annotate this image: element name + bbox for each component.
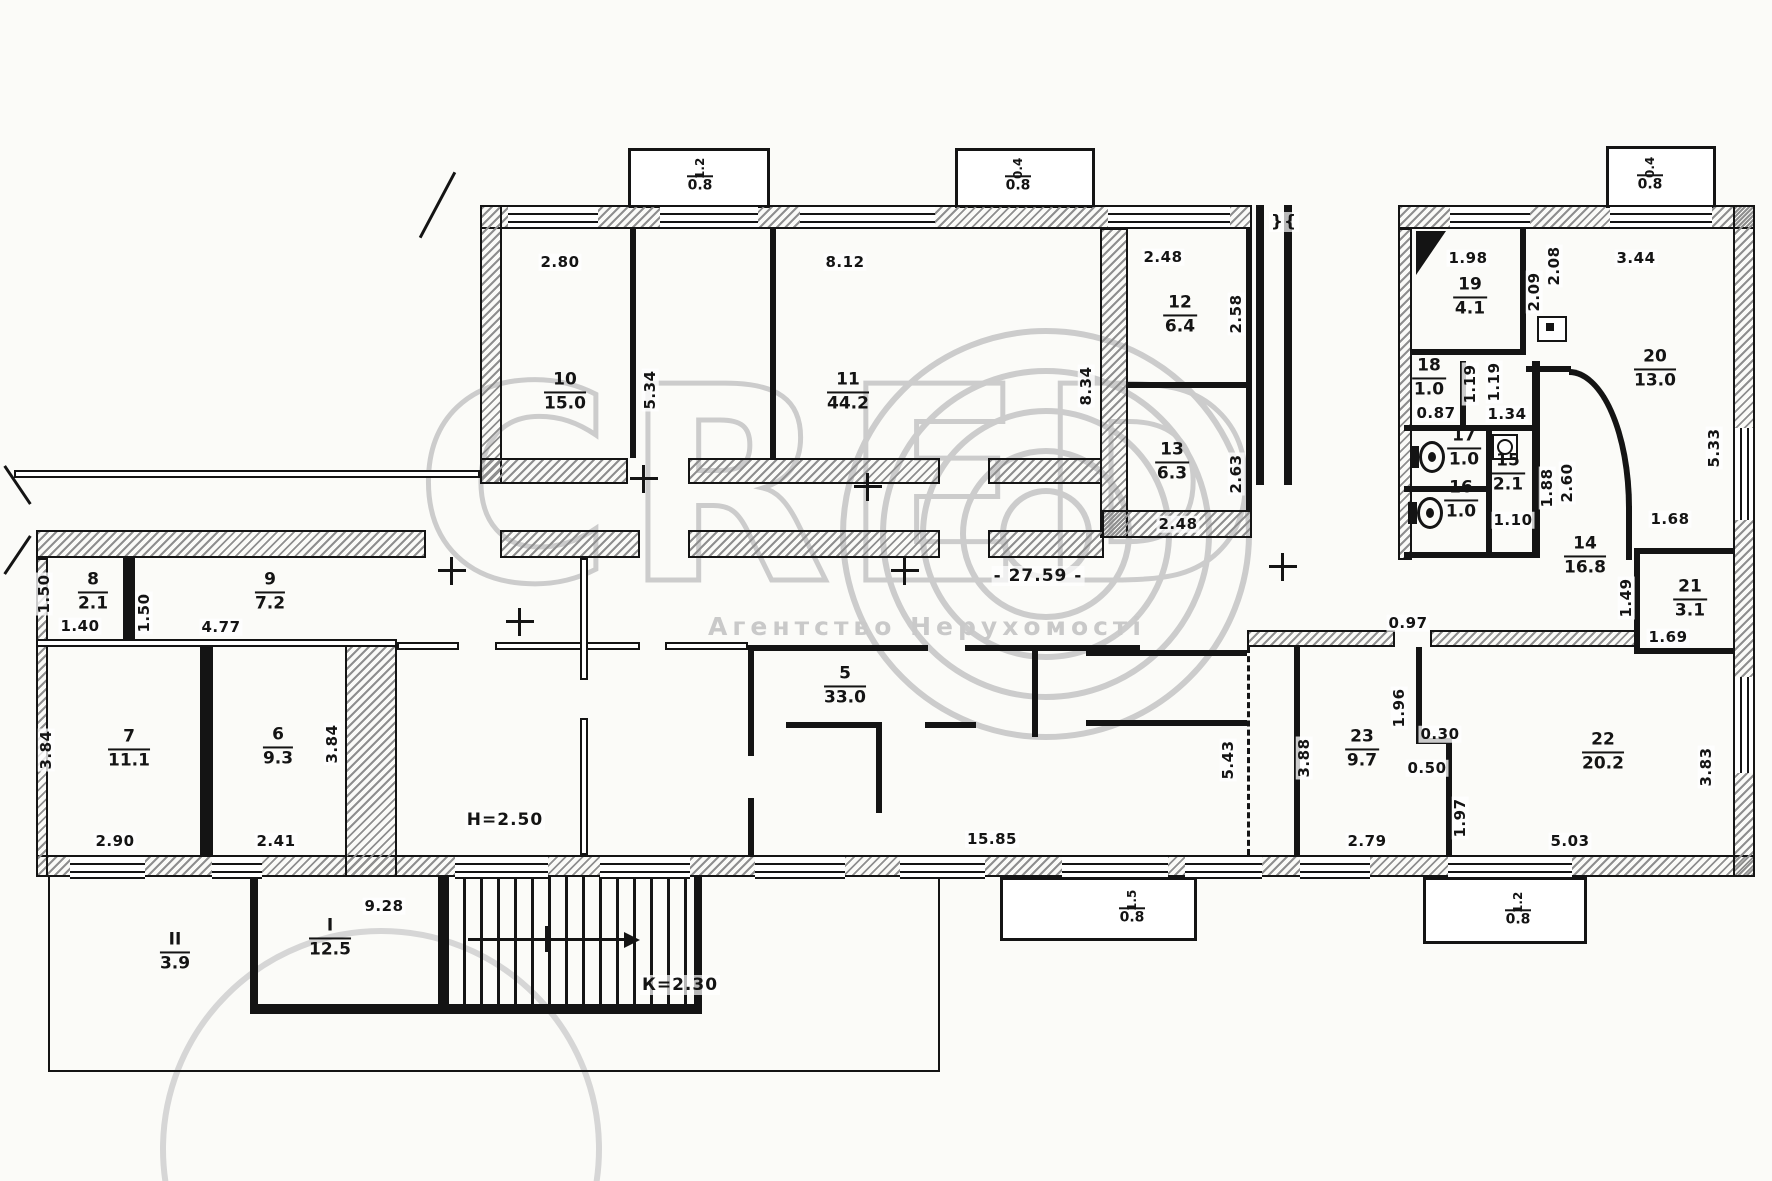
window-symbol [212,855,262,879]
dimension-label: 3.84 [38,728,55,771]
room-area: 1.0 [1444,501,1478,522]
bearing-wall [1430,630,1637,647]
bearing-wall [36,530,426,558]
bearing-wall [988,530,1104,558]
vent-shaft-icon [1416,231,1446,275]
partition-wall-double [665,642,748,650]
partition-wall [250,877,258,1010]
partition-wall [925,722,976,728]
room-label-13: 136.3 [1155,440,1189,483]
room-number: 17 [1447,426,1481,449]
dimension-label: 1.96 [1391,686,1408,729]
room-label-22: 2220.2 [1582,730,1624,773]
window-symbol [600,855,690,879]
room-label-11: 1144.2 [827,370,869,413]
partition-wall [1634,548,1640,654]
room-area: 1.0 [1412,379,1446,400]
room-number: 13 [1155,440,1189,463]
room-area: 9.3 [263,748,293,769]
balcony-index: 1.2 [694,155,706,181]
dimension-label: 0.87 [1414,405,1457,422]
room-number: 18 [1412,356,1446,379]
window-symbol [1062,855,1168,879]
partition-wall [1126,382,1252,388]
stair-direction-arrow-icon [624,932,640,948]
section-tick-icon [1269,553,1297,581]
partition-wall [748,798,754,855]
dashed-divider [1247,647,1250,855]
partition-wall [1086,720,1247,726]
room-label-I: I12.5 [309,916,351,959]
note-label: - 27.59 - [992,566,1085,586]
section-tick-icon [438,557,466,585]
watermark-subtitle: Агентство Нерухомості [708,612,1146,641]
room-area: 4.1 [1453,298,1487,319]
dimension-label: 2.58 [1228,292,1245,335]
bearing-wall [1100,228,1128,538]
dimension-label: 1.19 [1462,362,1479,405]
room-number: 9 [255,570,285,593]
dimension-label: 0.50 [1405,760,1448,777]
bearing-wall [480,205,502,484]
partition-wall [1626,506,1632,560]
dimension-label: 2.63 [1228,452,1245,495]
dimension-label: 1.40 [58,618,101,635]
dimension-label: 2.09 [1526,270,1543,313]
dimension-label: 2.48 [1141,249,1184,266]
room-label-12: 126.4 [1163,293,1197,336]
room-area: 1.0 [1447,449,1481,470]
room-label-9: 97.2 [255,570,285,613]
window-symbol [755,855,845,879]
partition-wall [786,722,882,728]
balcony-label: 1.20.8 [1505,896,1531,927]
room-number: 16 [1444,478,1478,501]
room-area: 6.4 [1163,316,1197,337]
dimension-label: 2.41 [254,833,297,850]
dimension-label: 1.19 [1486,360,1503,403]
dimension-label: 2.79 [1345,833,1388,850]
room-number: 5 [824,664,866,687]
partition-wall-double [397,642,459,650]
room-label-23: 239.7 [1345,727,1379,770]
window-symbol [1733,428,1755,520]
dimension-label: 1.98 [1446,250,1489,267]
bearing-wall [1247,630,1395,647]
dimension-label: 3.88 [1296,736,1313,779]
room-area: 3.9 [160,953,190,974]
dimension-label: 3.44 [1614,250,1657,267]
dimension-label: 0.30 [1418,726,1461,743]
partition-wall [1404,552,1538,558]
window-symbol [800,205,935,229]
window-symbol [508,205,598,229]
room-number: 10 [544,370,586,393]
dimension-label: 1.69 [1646,629,1689,646]
window-symbol [1185,855,1262,879]
dimension-label: 8.34 [1078,364,1095,407]
dimension-label: 4.77 [199,619,242,636]
balcony-index: 1.2 [1512,889,1524,915]
dimension-label: 8.12 [823,254,866,271]
room-label-6: 69.3 [263,725,293,768]
partition-wall [770,228,776,458]
bearing-wall [345,640,397,877]
partition-wall-double [580,558,588,680]
room-number: 6 [263,725,293,748]
dimension-label: 1.97 [1452,796,1469,839]
window-symbol [1300,855,1370,879]
balcony-label: 0.40.8 [1637,161,1663,192]
dimension-label: 1.49 [1618,576,1635,619]
room-label-18: 181.0 [1412,356,1446,399]
window-symbol [70,855,145,879]
partition-wall [1246,228,1252,510]
dimension-label: 1.68 [1648,511,1691,528]
dimension-label: 5.43 [1220,738,1237,781]
window-symbol [1108,205,1230,229]
room-area: 2.1 [1491,474,1525,495]
dimension-label: 15.85 [965,831,1019,848]
dimension-label: 2.80 [538,254,581,271]
room-area: 2.1 [78,593,108,614]
room-number: 20 [1634,347,1676,370]
partition-wall [1532,361,1540,558]
partition-wall [1256,205,1264,485]
room-area: 7.2 [255,593,285,614]
room-label-5: 533.0 [824,664,866,707]
room-label-15: 152.1 [1491,451,1525,494]
room-label-14: 1416.8 [1564,534,1606,577]
partition-wall-double [14,470,480,478]
dimension-label: 3.83 [1698,745,1715,788]
window-symbol [1733,677,1755,773]
terrace-outline [48,877,50,1072]
balcony-index: 1.5 [1126,887,1138,913]
dimension-label: 2.48 [1156,516,1199,533]
bearing-wall [1733,205,1755,877]
room-area: 16.8 [1564,557,1606,578]
partition-wall-double [36,639,397,647]
dimension-label: 1.50 [36,572,53,615]
room-area: 13.0 [1634,370,1676,391]
partition-wall [748,645,928,651]
room-area: 44.2 [827,393,869,414]
partition-wall [123,558,135,645]
room-label-20: 2013.0 [1634,347,1676,390]
dimension-label: 1.34 [1485,406,1528,423]
room-number: 22 [1582,730,1624,753]
toilet-icon [1410,441,1446,473]
room-area: 12.5 [309,939,351,960]
balcony-label: 1.50.8 [1119,894,1145,925]
room-number: 12 [1163,293,1197,316]
room-area: 9.7 [1345,750,1379,771]
room-label-19: 194.1 [1453,275,1487,318]
note-label: Н=2.50 [465,810,545,830]
stair-direction-line [468,938,624,941]
partition-wall [1284,205,1292,485]
room-area: 33.0 [824,687,866,708]
bearing-wall [480,458,628,484]
window-symbol [1610,205,1712,229]
section-tick-icon [506,608,534,636]
room-number: I [309,916,351,939]
bearing-wall [688,530,940,558]
dimension-label: 2.08 [1546,244,1563,287]
terrace-outline [938,877,940,1072]
section-tick-icon [854,473,882,501]
section-tick-icon [891,557,919,585]
dimension-label: 1.10 [1491,512,1534,529]
room-number: 23 [1345,727,1379,750]
partition-wall [1032,651,1038,737]
dimension-label: 5.33 [1706,426,1723,469]
partition-wall [748,651,754,756]
dimension-label: 9.28 [362,898,405,915]
toilet-icon [1408,497,1444,529]
bearing-wall [500,530,640,558]
room-number: 21 [1673,577,1707,600]
room-label-10: 1015.0 [544,370,586,413]
room-number: 15 [1491,451,1525,474]
dimension-label: 1.50 [136,591,153,634]
room-label-8: 82.1 [78,570,108,613]
partition-wall-double [495,642,640,650]
balcony-index: 0.4 [1644,154,1656,180]
partition-wall [200,647,213,855]
note-label: }{ [1269,212,1299,232]
window-symbol [455,855,548,879]
room-number: 11 [827,370,869,393]
partition-wall [1526,366,1571,372]
dimension-label: 5.03 [1548,833,1591,850]
room-area: 15.0 [544,393,586,414]
balcony-label: 0.40.8 [1005,162,1031,193]
partition-wall [438,877,446,1010]
partition-wall [250,1004,702,1014]
room-number: 8 [78,570,108,593]
vent-box-icon [1537,316,1567,342]
note-label: К=2.30 [640,975,720,995]
room-label-17: 171.0 [1447,426,1481,469]
room-number: 7 [108,727,150,750]
room-area: 3.1 [1673,600,1707,621]
room-label-21: 213.1 [1673,577,1707,620]
dimension-label: 2.60 [1559,461,1576,504]
floor-plan-canvas: CRED Агентство Нерухомості 533.069.3711.… [0,0,1772,1181]
room-area: 11.1 [108,750,150,771]
partition-wall-double [580,718,588,855]
bearing-wall [688,458,940,484]
room-label-16: 161.0 [1444,478,1478,521]
window-symbol [1448,855,1572,879]
dimension-label: 0.97 [1386,615,1429,632]
room-label-II: II3.9 [160,930,190,973]
window-symbol [900,855,985,879]
dimension-label: 3.84 [324,722,341,765]
room-number: 14 [1564,534,1606,557]
partition-wall [1634,548,1733,554]
room-number: II [160,930,190,953]
partition-wall [1086,650,1247,656]
terrace-outline [48,1070,940,1072]
partition-wall [876,728,882,813]
room-area: 6.3 [1155,463,1189,484]
partition-wall [1412,349,1526,355]
bearing-wall [988,458,1102,484]
dimension-label: 2.90 [93,833,136,850]
window-symbol [660,205,758,229]
room-area: 20.2 [1582,753,1624,774]
section-tick-icon [630,465,658,493]
partition-wall [630,228,636,458]
dimension-label: 5.34 [642,368,659,411]
balcony-label: 1.20.8 [687,162,713,193]
dimension-label: 1.88 [1539,466,1556,509]
window-symbol [1450,205,1530,229]
room-number: 19 [1453,275,1487,298]
balcony-outline [1000,877,1197,941]
balcony-index: 0.4 [1012,155,1024,181]
room-label-7: 711.1 [108,727,150,770]
partition-wall [1634,648,1733,654]
